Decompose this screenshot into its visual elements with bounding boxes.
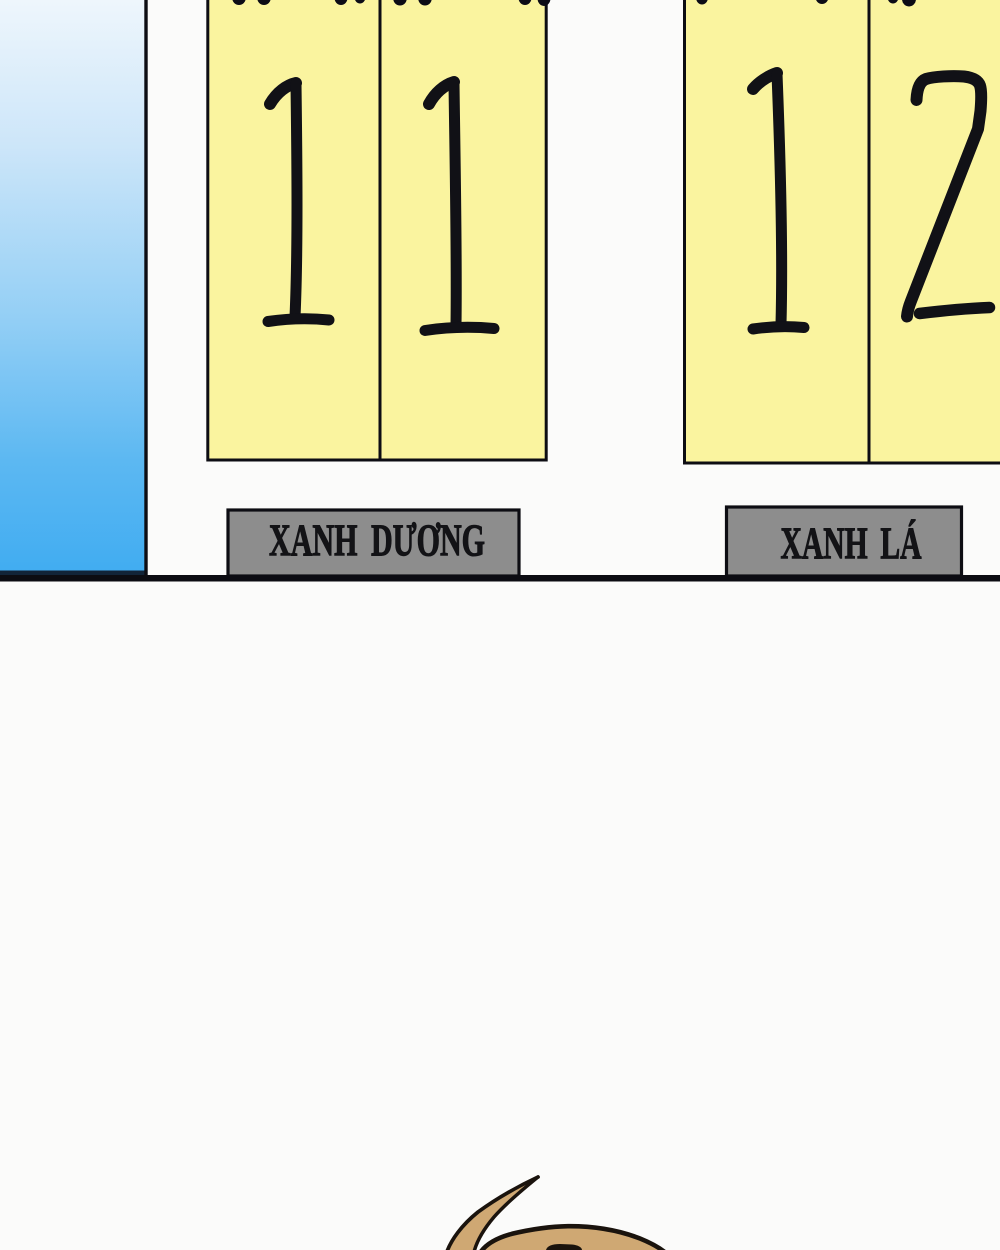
svg-text:XANH DƯƠNG: XANH DƯƠNG	[269, 516, 485, 566]
svg-text:XANH LÁ: XANH LÁ	[781, 519, 922, 569]
